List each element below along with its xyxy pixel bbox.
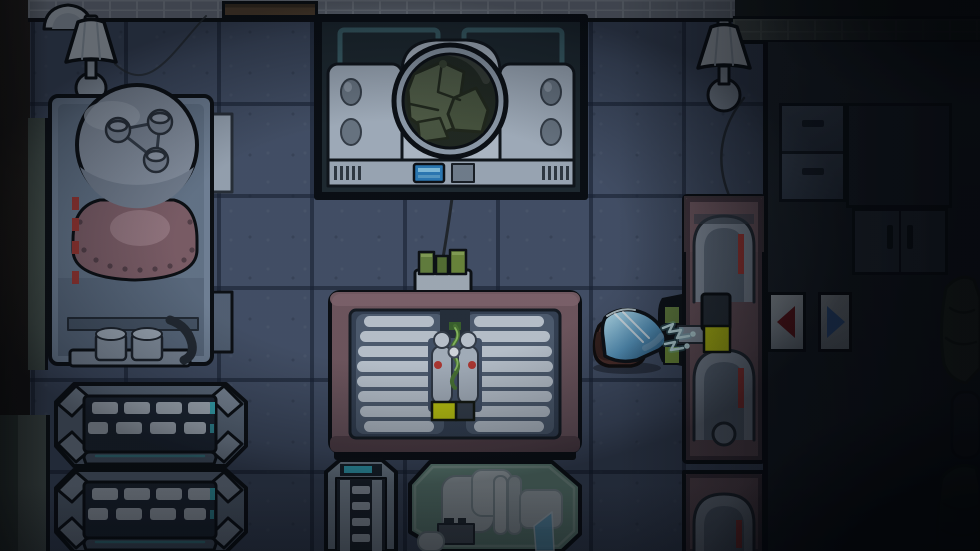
dark-cabinet [846, 103, 952, 208]
equipment-rack [316, 456, 406, 551]
drawer[interactable] [782, 106, 843, 151]
progress-bar-empty [456, 402, 474, 420]
lamp-cord-left [115, 16, 206, 75]
table-lamp-right [682, 18, 764, 118]
coil-machine[interactable] [328, 288, 582, 462]
side-slot-panel [212, 114, 232, 192]
crewmate-body[interactable] [585, 298, 705, 376]
cabinet-door[interactable] [855, 211, 901, 272]
cylinder [494, 476, 507, 534]
roller [458, 346, 478, 404]
lab-table [402, 452, 587, 551]
lamp-shade [698, 25, 750, 69]
task-highlight[interactable] [704, 326, 730, 352]
door-handle [907, 225, 913, 249]
left-arrow-icon [771, 295, 803, 349]
teal-label [344, 466, 372, 473]
capsule-ball [713, 423, 735, 445]
progress-bar-filled[interactable] [432, 402, 456, 420]
panel-arrow-left[interactable] [768, 292, 806, 352]
scanner-machine[interactable] [314, 14, 588, 200]
charge-column-lower [678, 468, 770, 551]
trash-bags-right [936, 268, 980, 551]
dark-canister [952, 392, 980, 458]
drawer[interactable] [782, 154, 843, 199]
drawer-handle [802, 168, 824, 175]
lamp-shade [66, 20, 116, 63]
connector-block [436, 256, 448, 274]
glass-visor-dome [602, 310, 666, 362]
panel-arrow-right[interactable] [818, 292, 852, 352]
trash-bag [941, 277, 980, 383]
game-viewport [0, 0, 980, 551]
drawer-unit [779, 103, 846, 202]
bench-lower [50, 464, 250, 551]
scanner-button[interactable] [452, 164, 474, 182]
lamp-stem [86, 60, 96, 78]
scanner-screen[interactable] [414, 164, 444, 182]
right-arrow-icon [821, 295, 849, 349]
bench-upper [50, 378, 250, 470]
capsule-top [694, 214, 754, 302]
lamp-stem [719, 66, 729, 84]
drawer-handle [802, 120, 824, 127]
boiler-machine [40, 82, 240, 382]
console-head [702, 294, 730, 330]
cabinet-doors [852, 208, 948, 275]
barrel-cap [110, 210, 170, 246]
cabinet-door[interactable] [901, 211, 945, 272]
capsule-stripe [736, 520, 742, 548]
door-handle [887, 225, 893, 249]
capsule-stripe [738, 234, 744, 274]
